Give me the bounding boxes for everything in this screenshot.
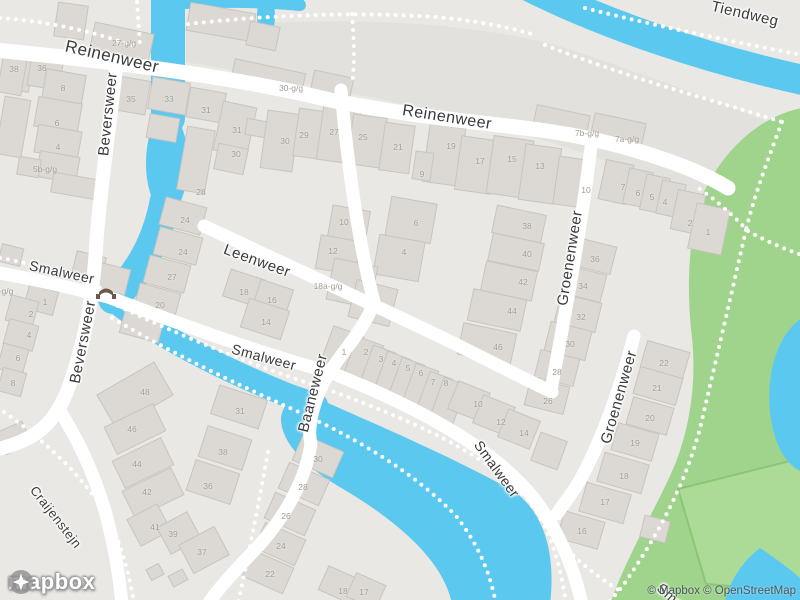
building [245, 118, 267, 137]
building [54, 2, 88, 40]
building [148, 77, 191, 115]
mapbox-logo-icon [8, 569, 34, 595]
map-canvas[interactable]: ReinenweerReinenweerTiendwegBeversweerBe… [0, 0, 800, 600]
map-graphics [0, 0, 800, 600]
building [17, 156, 42, 178]
building [379, 122, 415, 174]
building [146, 114, 180, 143]
building [412, 151, 434, 181]
mapbox-logo[interactable]: mapbox [8, 569, 95, 595]
map-attribution[interactable]: © Mapbox © OpenStreetMap [647, 585, 796, 597]
building [214, 143, 249, 175]
building [373, 234, 425, 281]
